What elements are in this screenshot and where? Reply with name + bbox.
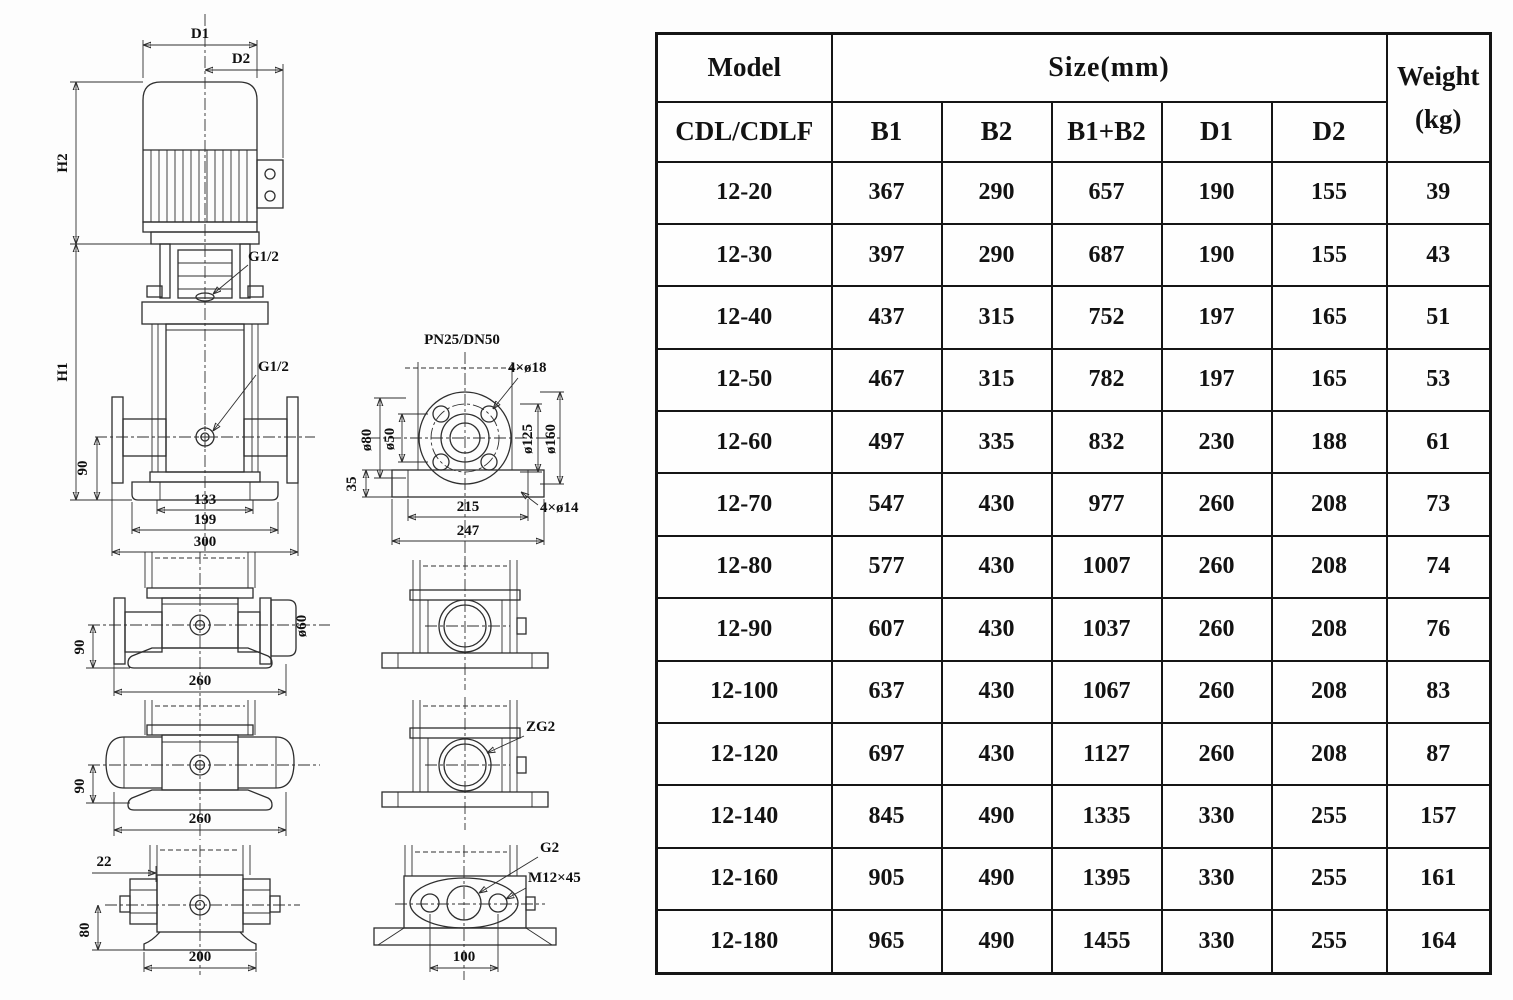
dim90-label-flanged: 90 [72, 640, 88, 655]
cell-model: 12-50 [657, 349, 832, 411]
col-header-b1-plus-b2: B1+B2 [1052, 102, 1162, 162]
cell-d1: 330 [1162, 910, 1272, 974]
cell-b1: 467 [832, 349, 942, 411]
cell-b1-plus-b2: 752 [1052, 286, 1162, 348]
port-label-g12-mid: G1/2 [258, 359, 289, 375]
cell-b1: 367 [832, 162, 942, 224]
flange-title: PN25/DN50 [424, 332, 500, 348]
dim-label-h1: H1 [55, 362, 71, 381]
col-header-model: Model [657, 34, 832, 102]
port-view-drawing [382, 558, 548, 690]
spec-table: Model Size(mm) Weight (kg) CDL/CDLF B1 B… [655, 32, 1492, 975]
cell-d2: 208 [1272, 536, 1387, 598]
cell-b1: 437 [832, 286, 942, 348]
dim-label-d1: D1 [191, 26, 209, 42]
cell-weight: 74 [1387, 536, 1491, 598]
cell-b1: 637 [832, 661, 942, 723]
table-row: 12-1609054901395330255161 [657, 848, 1491, 910]
port-label-g12-top: G1/2 [248, 249, 279, 265]
col-header-b1: B1 [832, 102, 942, 162]
cell-b1-plus-b2: 1455 [1052, 910, 1162, 974]
dim-label-199: 199 [194, 512, 217, 528]
dim-label-90: 90 [75, 461, 91, 476]
col-header-d1: D1 [1162, 102, 1272, 162]
cell-model: 12-180 [657, 910, 832, 974]
cell-b1-plus-b2: 1127 [1052, 723, 1162, 785]
cell-d2: 255 [1272, 848, 1387, 910]
cell-model: 12-120 [657, 723, 832, 785]
cell-d1: 190 [1162, 224, 1272, 286]
cell-d2: 208 [1272, 723, 1387, 785]
cell-d2: 155 [1272, 224, 1387, 286]
cell-d1: 197 [1162, 286, 1272, 348]
dim35-label: 35 [344, 477, 360, 492]
cell-d2: 165 [1272, 349, 1387, 411]
cell-weight: 83 [1387, 661, 1491, 723]
cell-b1: 497 [832, 411, 942, 473]
table-row: 12-1809654901455330255164 [657, 910, 1491, 974]
cell-d1: 330 [1162, 848, 1272, 910]
cell-b2: 430 [942, 536, 1052, 598]
dim80-label: 80 [77, 923, 93, 938]
drawings-panel: D1 D2 H2 H1 G1/2 [0, 0, 650, 1000]
cell-b2: 290 [942, 224, 1052, 286]
cell-b1: 547 [832, 473, 942, 535]
cell-b1-plus-b2: 977 [1052, 473, 1162, 535]
cell-d1: 260 [1162, 598, 1272, 660]
dim200-label: 200 [189, 949, 212, 965]
side-view-round-drawing: 90 260 [72, 698, 320, 840]
cell-b2: 430 [942, 723, 1052, 785]
cell-b2: 290 [942, 162, 1052, 224]
col-header-b2: B2 [942, 102, 1052, 162]
dim100-label: 100 [453, 949, 476, 965]
table-row: 12-1408454901335330255157 [657, 785, 1491, 847]
cell-b2: 430 [942, 473, 1052, 535]
cell-weight: 73 [1387, 473, 1491, 535]
motor-body [143, 82, 257, 222]
cell-weight: 87 [1387, 723, 1491, 785]
cell-b1: 905 [832, 848, 942, 910]
table-row: 12-7054743097726020873 [657, 473, 1491, 535]
cell-b2: 335 [942, 411, 1052, 473]
port-view-zg2-drawing: ZG2 [382, 697, 555, 830]
cell-model: 12-80 [657, 536, 832, 598]
table-row: 12-6049733583223018861 [657, 411, 1491, 473]
cell-weight: 43 [1387, 224, 1491, 286]
dim22-label: 22 [97, 854, 112, 870]
cell-b1-plus-b2: 687 [1052, 224, 1162, 286]
dim-label-133: 133 [194, 492, 217, 508]
cell-b1-plus-b2: 657 [1052, 162, 1162, 224]
cell-b1-plus-b2: 1067 [1052, 661, 1162, 723]
flange-top-view-drawing: PN25/DN50 4×ø18 ø80 ø50 ø125 [344, 332, 579, 565]
cell-b2: 490 [942, 910, 1052, 974]
cell-model: 12-140 [657, 785, 832, 847]
cell-weight: 157 [1387, 785, 1491, 847]
cell-d1: 197 [1162, 349, 1272, 411]
cell-d2: 255 [1272, 910, 1387, 974]
cell-d2: 208 [1272, 598, 1387, 660]
cell-weight: 61 [1387, 411, 1491, 473]
spec-table-header: Model Size(mm) Weight (kg) CDL/CDLF B1 B… [657, 34, 1491, 162]
cell-b2: 430 [942, 598, 1052, 660]
cell-b1: 697 [832, 723, 942, 785]
page: D1 D2 H2 H1 G1/2 [0, 0, 1513, 1000]
cell-model: 12-90 [657, 598, 832, 660]
cell-weight: 53 [1387, 349, 1491, 411]
cell-model: 12-20 [657, 162, 832, 224]
cell-model: 12-70 [657, 473, 832, 535]
cell-weight: 51 [1387, 286, 1491, 348]
dim260-label-round: 260 [189, 811, 212, 827]
col-header-model-sub: CDL/CDLF [657, 102, 832, 162]
cell-b1-plus-b2: 1335 [1052, 785, 1162, 847]
table-row: 12-80577430100726020874 [657, 536, 1491, 598]
front-view-drawing: D1 D2 H2 H1 G1/2 [55, 14, 315, 556]
table-row: 12-3039729068719015543 [657, 224, 1491, 286]
cell-b1: 607 [832, 598, 942, 660]
cell-b1: 397 [832, 224, 942, 286]
cell-model: 12-60 [657, 411, 832, 473]
dia125-label: ø125 [520, 424, 536, 454]
cell-d1: 230 [1162, 411, 1272, 473]
cell-d1: 330 [1162, 785, 1272, 847]
bolt-holes-label: 4×ø18 [508, 360, 547, 376]
col-group-size: Size(mm) [832, 34, 1387, 102]
cell-model: 12-40 [657, 286, 832, 348]
cell-b2: 490 [942, 785, 1052, 847]
oval-flange-view-drawing: G2 M12×45 100 [374, 840, 581, 980]
cell-weight: 161 [1387, 848, 1491, 910]
table-row: 12-100637430106726020883 [657, 661, 1491, 723]
cell-d1: 260 [1162, 723, 1272, 785]
cell-b2: 430 [942, 661, 1052, 723]
cell-model: 12-160 [657, 848, 832, 910]
cell-b2: 315 [942, 286, 1052, 348]
dia80-label: ø80 [359, 429, 375, 452]
cell-d1: 260 [1162, 536, 1272, 598]
col-header-weight: Weight (kg) [1387, 34, 1491, 162]
cell-b1: 965 [832, 910, 942, 974]
table-row: 12-4043731575219716551 [657, 286, 1491, 348]
cell-weight: 39 [1387, 162, 1491, 224]
cell-d2: 208 [1272, 661, 1387, 723]
cell-b1: 577 [832, 536, 942, 598]
dim-label-d2: D2 [232, 51, 250, 67]
m12x45-label: M12×45 [528, 870, 581, 886]
zg2-label: ZG2 [526, 719, 555, 735]
cell-model: 12-30 [657, 224, 832, 286]
dim260-label-flanged: 260 [189, 673, 212, 689]
dia160-label: ø160 [543, 424, 559, 454]
dim-label-300: 300 [194, 534, 217, 550]
cell-weight: 76 [1387, 598, 1491, 660]
weight-label-line2: (kg) [1388, 104, 1490, 135]
cell-d2: 255 [1272, 785, 1387, 847]
cell-b1-plus-b2: 1395 [1052, 848, 1162, 910]
dim215-label: 215 [457, 499, 480, 515]
cell-model: 12-100 [657, 661, 832, 723]
base-holes-label: 4×ø14 [540, 500, 579, 516]
cell-b2: 490 [942, 848, 1052, 910]
table-row: 12-90607430103726020876 [657, 598, 1491, 660]
table-row: 12-120697430112726020887 [657, 723, 1491, 785]
weight-label-line1: Weight [1388, 61, 1490, 92]
cell-b1-plus-b2: 782 [1052, 349, 1162, 411]
cell-d2: 155 [1272, 162, 1387, 224]
g2-label: G2 [540, 840, 559, 856]
dia50-label: ø50 [382, 428, 398, 451]
table-row: 12-5046731578219716553 [657, 349, 1491, 411]
dim-label-h2: H2 [55, 153, 71, 172]
dim247-label: 247 [457, 523, 480, 539]
side-view-flanged-drawing: ø60 90 260 [72, 552, 330, 706]
cell-b2: 315 [942, 349, 1052, 411]
col-header-d2: D2 [1272, 102, 1387, 162]
spec-table-body: 12-203672906571901553912-303972906871901… [657, 162, 1491, 974]
cell-b1: 845 [832, 785, 942, 847]
cell-b1-plus-b2: 1037 [1052, 598, 1162, 660]
table-row: 12-2036729065719015539 [657, 162, 1491, 224]
cell-b1-plus-b2: 832 [1052, 411, 1162, 473]
cell-d1: 260 [1162, 473, 1272, 535]
cell-b1-plus-b2: 1007 [1052, 536, 1162, 598]
cell-d2: 188 [1272, 411, 1387, 473]
dim90-label-round: 90 [72, 779, 88, 794]
cell-d1: 260 [1162, 661, 1272, 723]
cell-d1: 190 [1162, 162, 1272, 224]
cell-d2: 208 [1272, 473, 1387, 535]
cell-d2: 165 [1272, 286, 1387, 348]
dia60-label: ø60 [294, 615, 310, 638]
base-view-drawing: 22 80 200 [77, 845, 300, 975]
cell-weight: 164 [1387, 910, 1491, 974]
technical-drawings: D1 D2 H2 H1 G1/2 [0, 0, 650, 1000]
